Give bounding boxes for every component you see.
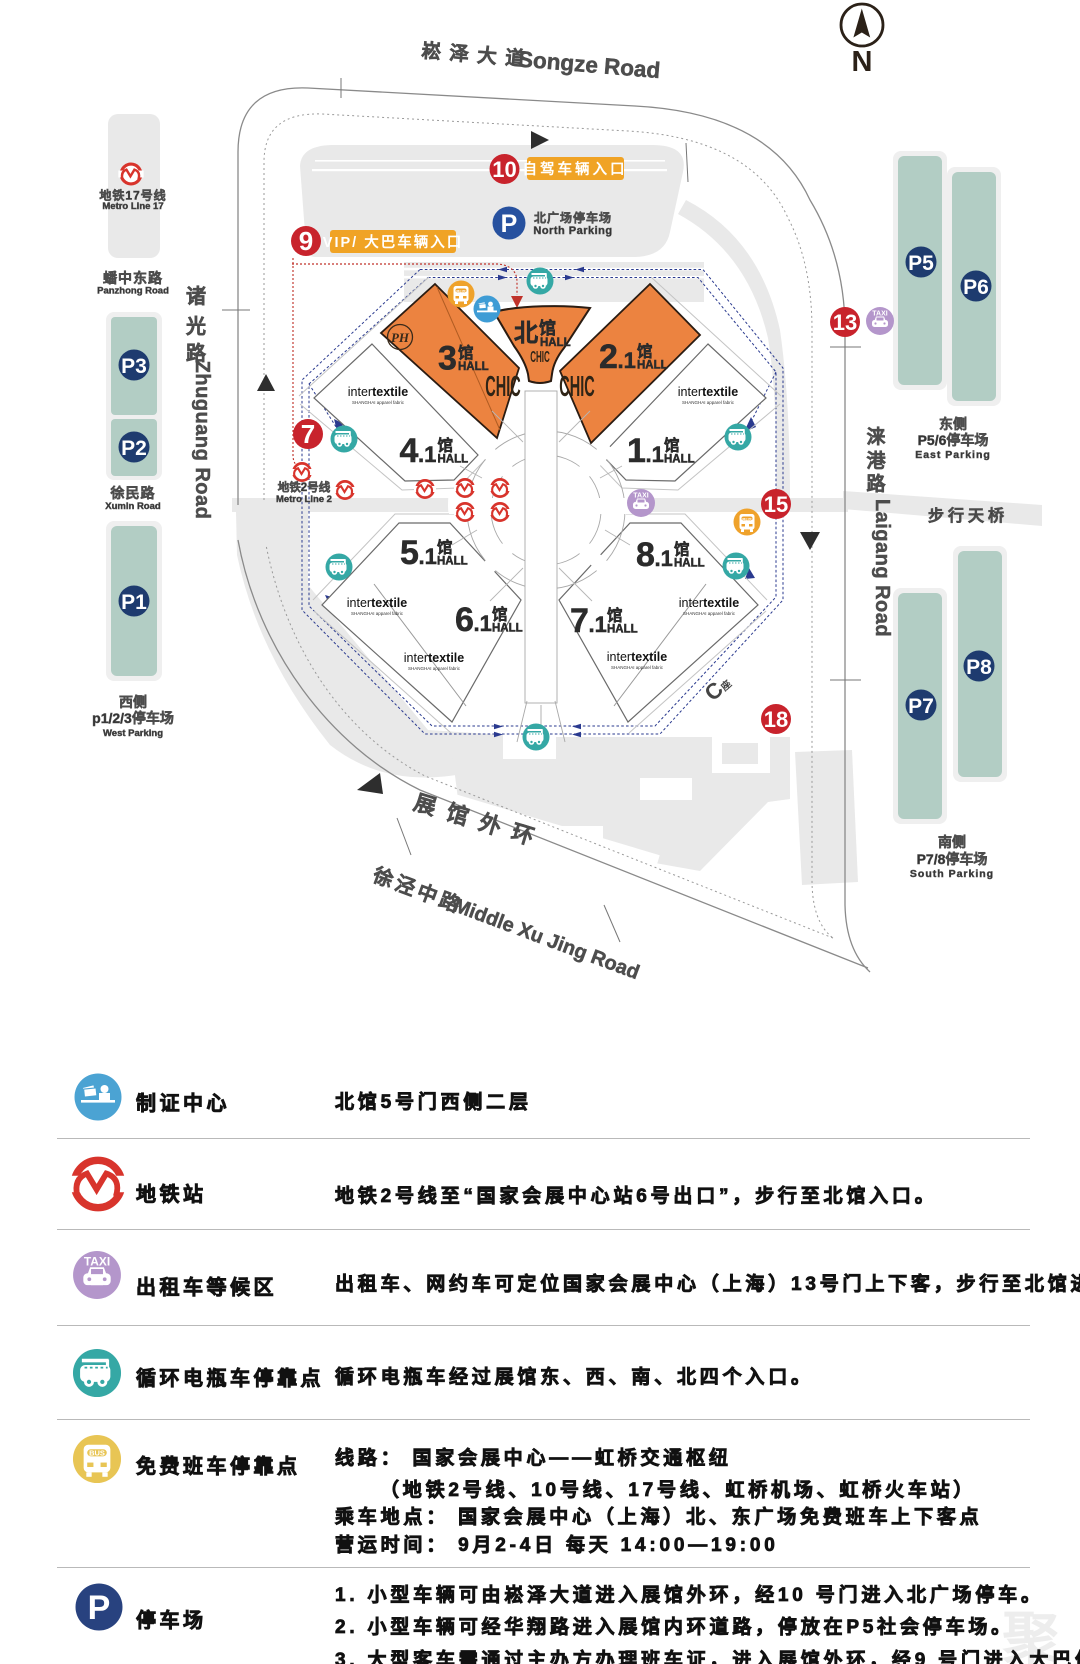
svg-text:intertextile: intertextile xyxy=(348,385,409,399)
svg-text:路: 路 xyxy=(866,472,886,495)
svg-text:馆: 馆 xyxy=(492,605,508,624)
svg-text:.1: .1 xyxy=(618,348,636,373)
svg-text:CHIC: CHIC xyxy=(559,369,594,402)
svg-text:intertextile: intertextile xyxy=(404,651,465,665)
svg-text:港: 港 xyxy=(866,450,886,472)
svg-text:P: P xyxy=(501,210,518,238)
svg-text:Metro Line 2: Metro Line 2 xyxy=(276,494,332,505)
svg-text:10: 10 xyxy=(492,157,516,182)
svg-text:.1: .1 xyxy=(589,612,607,637)
svg-text:HALL: HALL xyxy=(492,623,523,635)
svg-text:馆: 馆 xyxy=(458,343,474,362)
svg-text:.1: .1 xyxy=(646,442,664,467)
svg-text:P8: P8 xyxy=(966,656,992,679)
svg-text:2: 2 xyxy=(599,338,618,376)
svg-text:馆: 馆 xyxy=(607,606,623,625)
svg-text:.1: .1 xyxy=(655,546,673,571)
svg-text:SHANGHAI apparel fabric: SHANGHAI apparel fabric xyxy=(408,666,461,671)
svg-text:步行天桥: 步行天桥 xyxy=(928,506,1008,525)
svg-text:intertextile: intertextile xyxy=(347,596,408,610)
svg-text:P: P xyxy=(88,1589,111,1627)
svg-text:BUS: BUS xyxy=(89,1448,105,1457)
svg-text:东侧: 东侧 xyxy=(939,416,967,432)
svg-text:HALL: HALL xyxy=(458,361,489,373)
svg-text:1: 1 xyxy=(627,432,646,470)
svg-text:光: 光 xyxy=(185,315,206,338)
svg-text:East Parking: East Parking xyxy=(915,449,991,461)
svg-text:.1: .1 xyxy=(418,442,436,467)
svg-text:4: 4 xyxy=(400,432,419,470)
svg-text:.1: .1 xyxy=(419,544,437,569)
svg-text:P7/8停车场: P7/8停车场 xyxy=(917,851,988,867)
svg-text:3: 3 xyxy=(438,340,457,378)
svg-text:P6: P6 xyxy=(963,276,989,299)
svg-text:馆: 馆 xyxy=(674,540,690,559)
svg-text:N: N xyxy=(852,46,873,78)
svg-text:HALL: HALL xyxy=(607,624,638,636)
svg-text:Middle Xu Jing Road: Middle Xu Jing Road xyxy=(450,895,642,984)
svg-text:自驾车辆入口: 自驾车辆入口 xyxy=(523,160,628,178)
svg-text:CHIC: CHIC xyxy=(485,369,520,402)
svg-text:Metro Line 17: Metro Line 17 xyxy=(102,201,163,212)
svg-text:p1/2/3停车场: p1/2/3停车场 xyxy=(92,710,174,726)
svg-text:North Parking: North Parking xyxy=(533,225,612,237)
svg-text:South Parking: South Parking xyxy=(910,868,994,880)
svg-text:13: 13 xyxy=(833,310,857,335)
svg-text:P5: P5 xyxy=(908,252,934,275)
svg-text:馆: 馆 xyxy=(437,538,453,557)
svg-text:馆: 馆 xyxy=(438,436,454,455)
svg-text:7: 7 xyxy=(301,419,315,449)
svg-text:15: 15 xyxy=(764,492,788,517)
svg-text:PH: PH xyxy=(391,330,410,345)
svg-text:CHIC: CHIC xyxy=(530,348,550,366)
svg-text:intertextile: intertextile xyxy=(607,650,668,664)
svg-text:蟠中东路: 蟠中东路 xyxy=(103,270,163,286)
svg-text:SHANGHAI apparel fabric: SHANGHAI apparel fabric xyxy=(683,611,736,616)
svg-text:南侧: 南侧 xyxy=(938,834,966,850)
svg-text:West Parking: West Parking xyxy=(103,728,163,739)
svg-text:HALL: HALL xyxy=(637,360,668,372)
svg-text:馆: 馆 xyxy=(637,342,653,361)
svg-text:Laigang Road: Laigang Road xyxy=(871,499,893,637)
svg-text:馆: 馆 xyxy=(539,318,556,338)
svg-text:SHANGHAI apparel fabric: SHANGHAI apparel fabric xyxy=(611,665,664,670)
svg-text:6: 6 xyxy=(455,601,474,639)
svg-text:HALL: HALL xyxy=(664,454,695,466)
svg-text:8: 8 xyxy=(636,536,655,574)
svg-text:Songze Road: Songze Road xyxy=(517,47,661,84)
svg-text:C座: C座 xyxy=(700,670,736,706)
svg-text:SHANGHAI apparel fabric: SHANGHAI apparel fabric xyxy=(682,400,735,405)
svg-text:地铁2号线: 地铁2号线 xyxy=(278,480,331,494)
svg-text:9: 9 xyxy=(299,226,313,256)
svg-text:HALL: HALL xyxy=(437,556,468,568)
svg-text:VIP/ 大巴车辆入口: VIP/ 大巴车辆入口 xyxy=(323,233,463,251)
svg-text:Xumin Road: Xumin Road xyxy=(105,501,161,512)
svg-text:西侧: 西侧 xyxy=(119,694,147,710)
svg-text:Panzhong Road: Panzhong Road xyxy=(97,286,169,297)
svg-text:intertextile: intertextile xyxy=(678,385,739,399)
svg-text:HALL: HALL xyxy=(438,454,469,466)
svg-text:7: 7 xyxy=(570,602,589,640)
svg-text:P7: P7 xyxy=(908,695,934,718)
svg-text:SHANGHAI apparel fabric: SHANGHAI apparel fabric xyxy=(352,400,405,405)
svg-text:北广场停车场: 北广场停车场 xyxy=(534,210,612,225)
svg-text:.1: .1 xyxy=(474,611,492,636)
svg-text:P1: P1 xyxy=(121,591,147,614)
svg-text:Zhuguang Road: Zhuguang Road xyxy=(191,361,213,520)
svg-text:涞: 涞 xyxy=(866,426,885,448)
svg-text:徐民路: 徐民路 xyxy=(110,485,156,501)
svg-text:5: 5 xyxy=(400,534,419,572)
svg-text:SHANGHAI apparel fabric: SHANGHAI apparel fabric xyxy=(351,611,404,616)
svg-text:馆: 馆 xyxy=(664,436,680,455)
svg-text:intertextile: intertextile xyxy=(679,596,740,610)
svg-text:18: 18 xyxy=(764,707,788,732)
svg-text:P2: P2 xyxy=(121,437,147,460)
svg-text:P5/6停车场: P5/6停车场 xyxy=(918,432,989,448)
svg-text:诸: 诸 xyxy=(186,285,206,308)
svg-text:北: 北 xyxy=(514,320,538,347)
svg-text:P3: P3 xyxy=(121,355,147,378)
svg-text:HALL: HALL xyxy=(674,558,705,570)
